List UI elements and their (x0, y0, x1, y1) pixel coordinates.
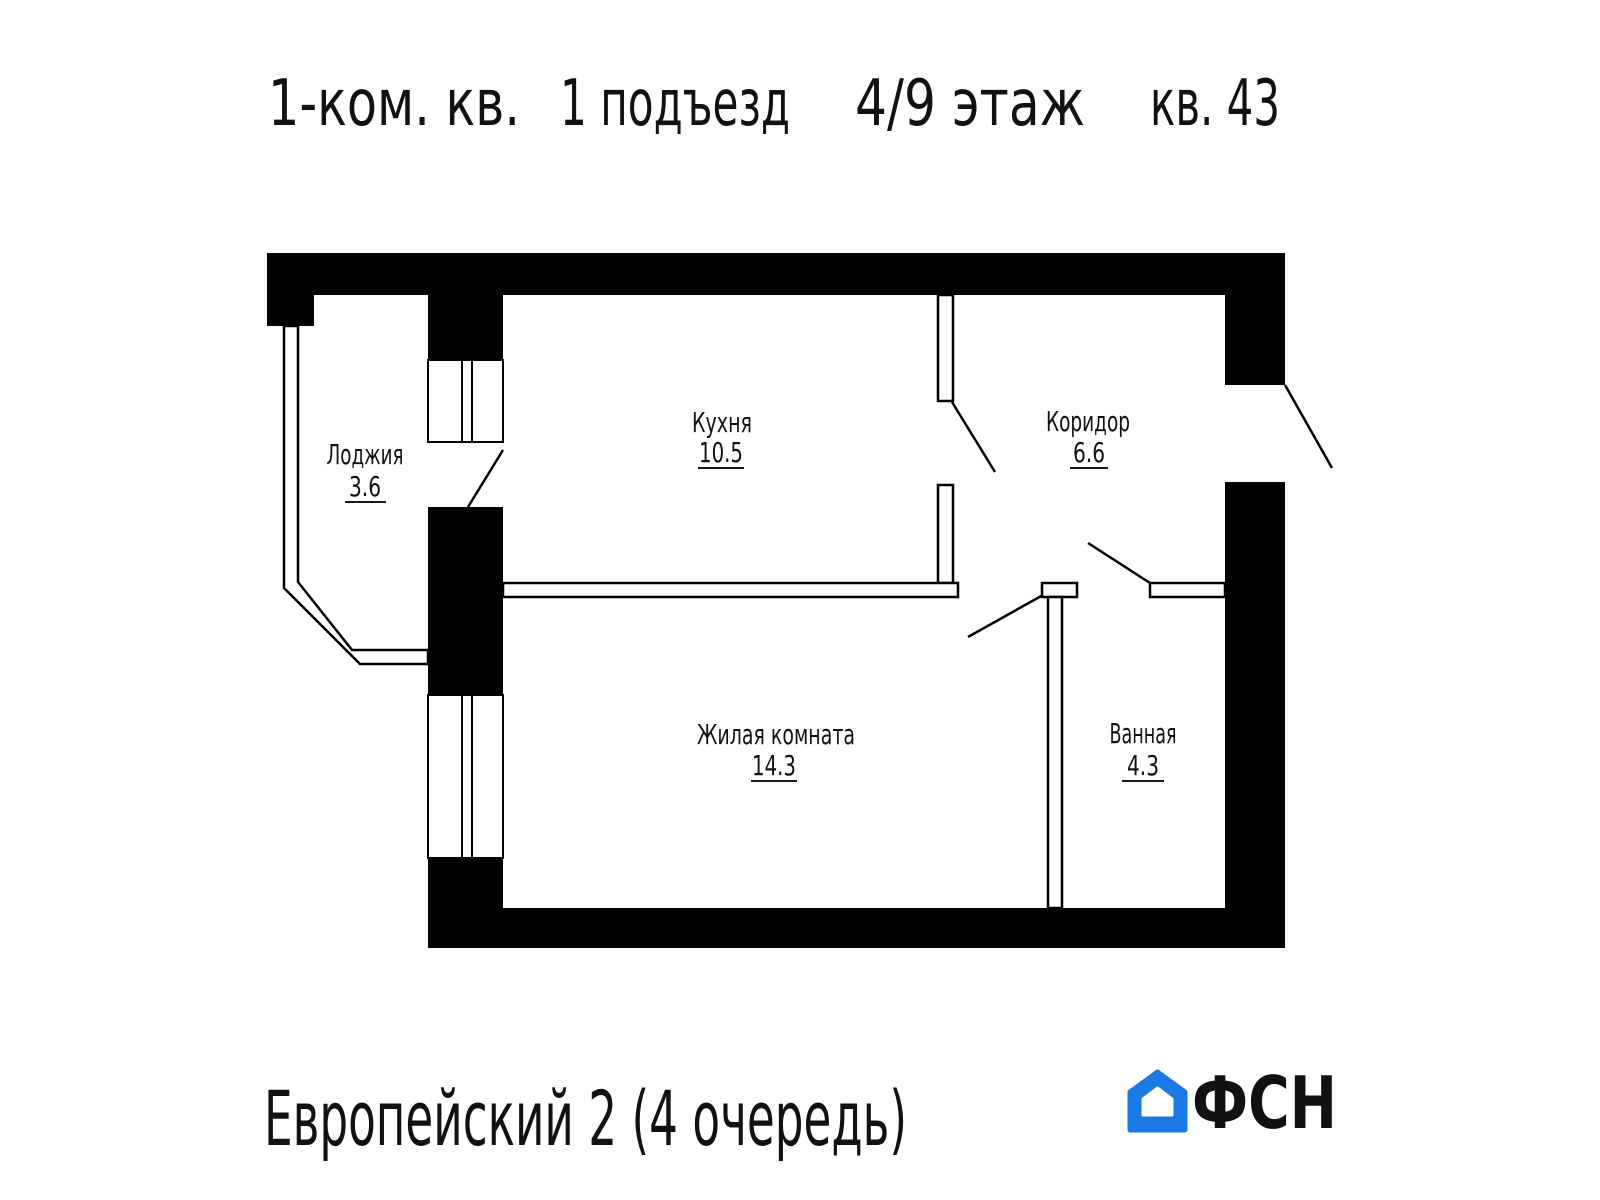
room-name-kitchen: Кухня (692, 406, 752, 439)
room-area-bathroom: 4.3 (1127, 749, 1159, 782)
partition-kitchen-corridor-upper (938, 295, 953, 401)
title-part-apt: кв. 43 (1150, 67, 1280, 141)
wall-bottom (428, 908, 1285, 948)
title-part-floor: 4/9 этаж (855, 67, 1085, 141)
door-bathroom (1088, 543, 1150, 583)
room-area-kitchen: 10.5 (699, 436, 743, 469)
exterior-walls (267, 253, 1285, 948)
room-area-loggia: 3.6 (349, 470, 381, 503)
wall-column-middle (428, 507, 503, 695)
room-name-corridor: Коридор (1046, 405, 1130, 438)
title-part-rooms: 1-ком. кв. (268, 67, 520, 141)
wall-top (267, 253, 1285, 295)
logo-text: ФСН (1192, 1061, 1337, 1145)
partition-bathroom-cap (1042, 583, 1077, 597)
room-area-living: 14.3 (752, 749, 796, 782)
room-label-corridor: Коридор 6.6 (1046, 405, 1130, 469)
door-entrance (1285, 385, 1332, 468)
floor-plan-canvas: 1-ком. кв. 1 подъезд 4/9 этаж кв. 43 (0, 0, 1600, 1200)
title-part-entrance: 1 подъезд (560, 67, 790, 141)
wall-corner-top-left (267, 253, 314, 326)
room-label-kitchen: Кухня 10.5 (692, 406, 752, 469)
room-name-living: Жилая комната (697, 718, 855, 751)
window-balcony (428, 360, 503, 442)
wall-right (1225, 482, 1285, 948)
window-living-frame (428, 695, 503, 858)
door-kitchen (952, 402, 995, 472)
wall-column-top (428, 253, 503, 360)
partition-bathroom (1048, 597, 1062, 908)
doors (468, 385, 1332, 637)
partition-horizontal-main (503, 583, 958, 597)
title: 1-ком. кв. 1 подъезд 4/9 этаж кв. 43 (268, 67, 1280, 141)
partition-kitchen-corridor-lower (938, 485, 953, 583)
window-balcony-frame (428, 360, 503, 442)
room-label-living-room: Жилая комната 14.3 (697, 718, 855, 782)
fsn-logo: ФСН (1130, 1061, 1337, 1145)
interior-partitions (503, 295, 1225, 908)
door-living-room (968, 595, 1043, 637)
wall-corner-top-right (1225, 295, 1285, 385)
room-area-corridor: 6.6 (1073, 436, 1105, 469)
room-label-loggia: Лоджия 3.6 (327, 438, 404, 503)
room-label-bathroom: Ванная 4.3 (1110, 717, 1177, 782)
partition-corridor-bathroom (1150, 583, 1225, 597)
footer-project-name: Европейский 2 (4 очередь) (264, 1074, 907, 1163)
door-balcony (468, 450, 503, 507)
window-living-room (428, 695, 503, 858)
room-name-bathroom: Ванная (1110, 717, 1177, 750)
floor-plan-page: 1-ком. кв. 1 подъезд 4/9 этаж кв. 43 (0, 0, 1600, 1200)
room-name-loggia: Лоджия (327, 438, 404, 471)
